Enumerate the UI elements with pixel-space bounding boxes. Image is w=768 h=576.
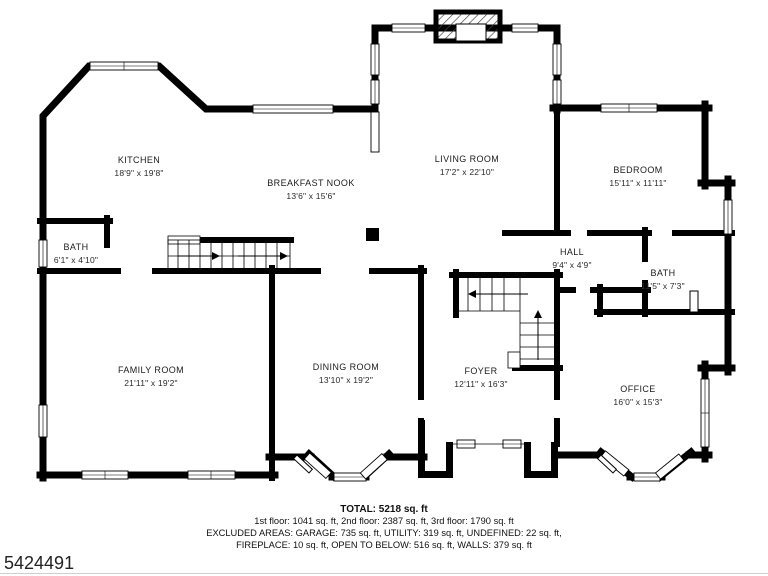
room-dims-bath-2: 11'5" x 7'3" <box>641 281 685 291</box>
window <box>553 80 561 104</box>
entry-pier-right <box>551 442 558 478</box>
room-dims-foyer: 12'11" x 16'3" <box>454 379 508 389</box>
stair-newel <box>508 352 520 368</box>
summary-total: TOTAL: 5218 sq. ft <box>340 504 428 515</box>
entry-piers <box>418 420 558 478</box>
room-dims-office: 16'0" x 15'3" <box>613 397 662 407</box>
room-name-bath-2: BATH <box>651 268 676 278</box>
room-dims-breakfast-nook: 13'6" x 15'6" <box>286 191 335 201</box>
room-name-hall: HALL <box>560 247 584 257</box>
window-bay-diagonal <box>360 454 387 479</box>
room-dims-bath-1: 6'1" x 4'10" <box>54 255 98 265</box>
window-sidelite <box>503 440 521 448</box>
fireplace-chimney <box>436 12 500 41</box>
room-name-office: OFFICE <box>620 384 655 394</box>
exterior-walls <box>40 28 732 478</box>
room-dims-dining-room: 13'10" x 19'2" <box>319 375 373 385</box>
room-name-dining-room: DINING ROOM <box>313 362 379 372</box>
floor-plan-page: KITCHEN 18'9" x 19'8" BREAKFAST NOOK 13'… <box>0 0 768 576</box>
window <box>82 471 128 479</box>
chimney-firebox <box>456 24 486 41</box>
room-dims-family-room: 21'11" x 19'2" <box>124 378 178 388</box>
window <box>601 104 657 112</box>
wall-office-bay <box>555 452 709 477</box>
summary-excluded-2: FIREPLACE: 10 sq. ft, OPEN TO BELOW: 516… <box>236 540 532 550</box>
area-summary: TOTAL: 5218 sq. ft 1st floor: 1041 sq. f… <box>206 504 561 550</box>
stair-direction-arrow <box>468 290 542 360</box>
window <box>253 105 333 113</box>
room-name-kitchen: KITCHEN <box>118 155 160 165</box>
room-name-family-room: FAMILY ROOM <box>118 365 184 375</box>
window <box>392 24 425 32</box>
window <box>371 44 379 75</box>
window <box>39 240 47 267</box>
listing-id-watermark: 5424491 <box>4 553 74 573</box>
room-dims-bedroom: 15'11" x 11'11" <box>609 178 666 188</box>
window <box>512 24 538 32</box>
window <box>188 471 235 479</box>
door-leaf-bath2 <box>690 291 698 312</box>
floor-plan-svg: KITCHEN 18'9" x 19'8" BREAKFAST NOOK 13'… <box>0 0 768 576</box>
window-sidelite <box>457 440 475 448</box>
stair-treads <box>456 278 555 368</box>
window <box>553 44 561 75</box>
room-name-bath-1: BATH <box>64 242 89 252</box>
entry-pier-left-post <box>446 442 453 478</box>
room-name-living-room: LIVING ROOM <box>435 154 499 164</box>
cased-opening <box>371 112 379 152</box>
entry-pier-left <box>418 420 425 478</box>
window <box>371 80 379 104</box>
room-dims-kitchen: 18'9" x 19'8" <box>114 168 163 178</box>
room-dims-hall: 9'4" x 4'9" <box>552 260 591 270</box>
room-name-bedroom: BEDROOM <box>613 165 662 175</box>
window-bay-diagonal <box>655 454 683 479</box>
room-name-breakfast-nook: BREAKFAST NOOK <box>267 178 354 188</box>
staircase-foyer <box>456 278 555 368</box>
window <box>90 62 158 70</box>
room-labels: KITCHEN 18'9" x 19'8" BREAKFAST NOOK 13'… <box>54 154 685 407</box>
entry-pier-right-base <box>524 471 552 478</box>
windows <box>39 24 732 481</box>
window <box>724 200 732 234</box>
summary-excluded-1: EXCLUDED AREAS: GARAGE: 735 sq. ft, UTIL… <box>206 528 561 538</box>
wall-stub <box>366 228 379 241</box>
window <box>39 405 47 437</box>
window <box>701 379 709 447</box>
room-dims-living-room: 17'2" x 22'10" <box>440 167 494 177</box>
summary-floors: 1st floor: 1041 sq. ft, 2nd floor: 2387 … <box>254 516 514 526</box>
room-name-foyer: FOYER <box>464 366 497 376</box>
